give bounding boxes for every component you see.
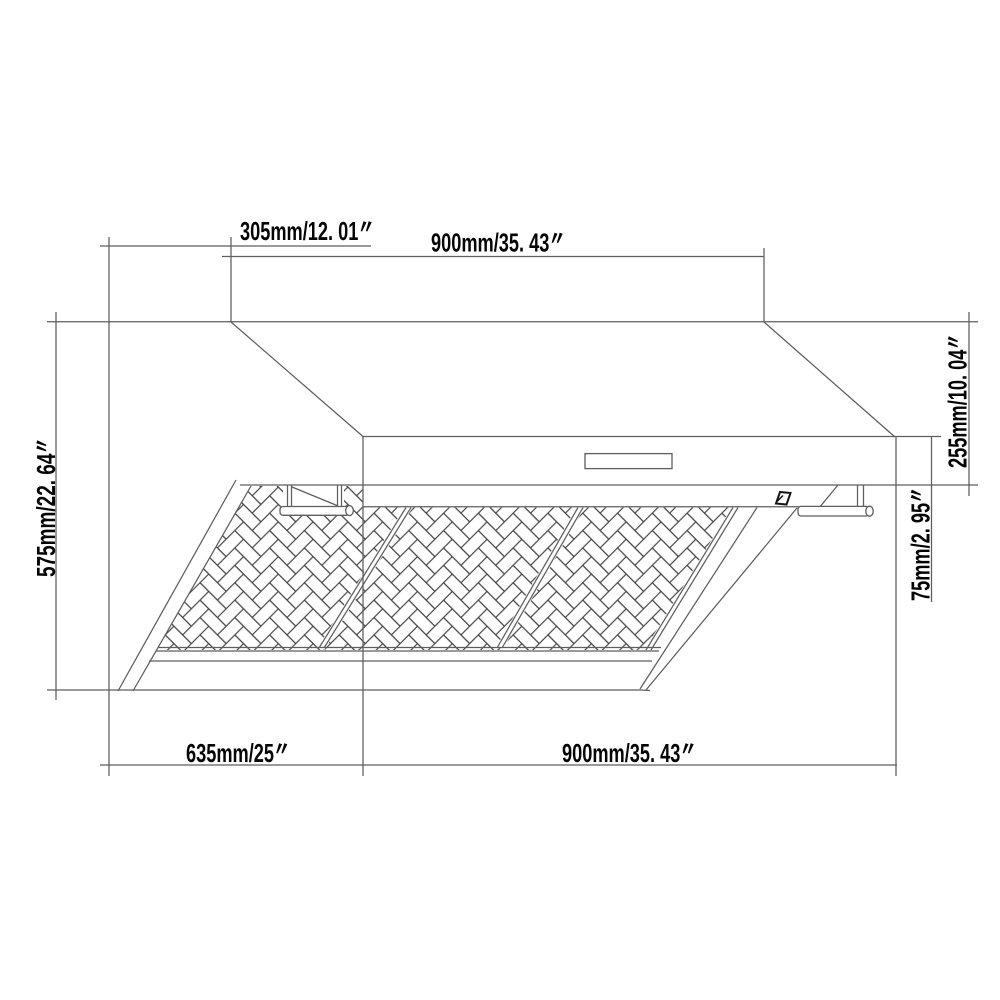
svg-text:255mm/10. 04: 255mm/10. 04 bbox=[943, 349, 972, 468]
svg-text:900mm/35. 43: 900mm/35. 43 bbox=[562, 739, 680, 768]
svg-text:575mm/22. 64: 575mm/22. 64 bbox=[31, 453, 61, 577]
svg-text:900mm/35. 43: 900mm/35. 43 bbox=[431, 228, 549, 257]
svg-text:75mm/2. 95: 75mm/2. 95 bbox=[906, 503, 935, 601]
svg-text:305mm/12. 01: 305mm/12. 01 bbox=[240, 217, 358, 246]
svg-text:635mm/25: 635mm/25 bbox=[186, 739, 274, 768]
